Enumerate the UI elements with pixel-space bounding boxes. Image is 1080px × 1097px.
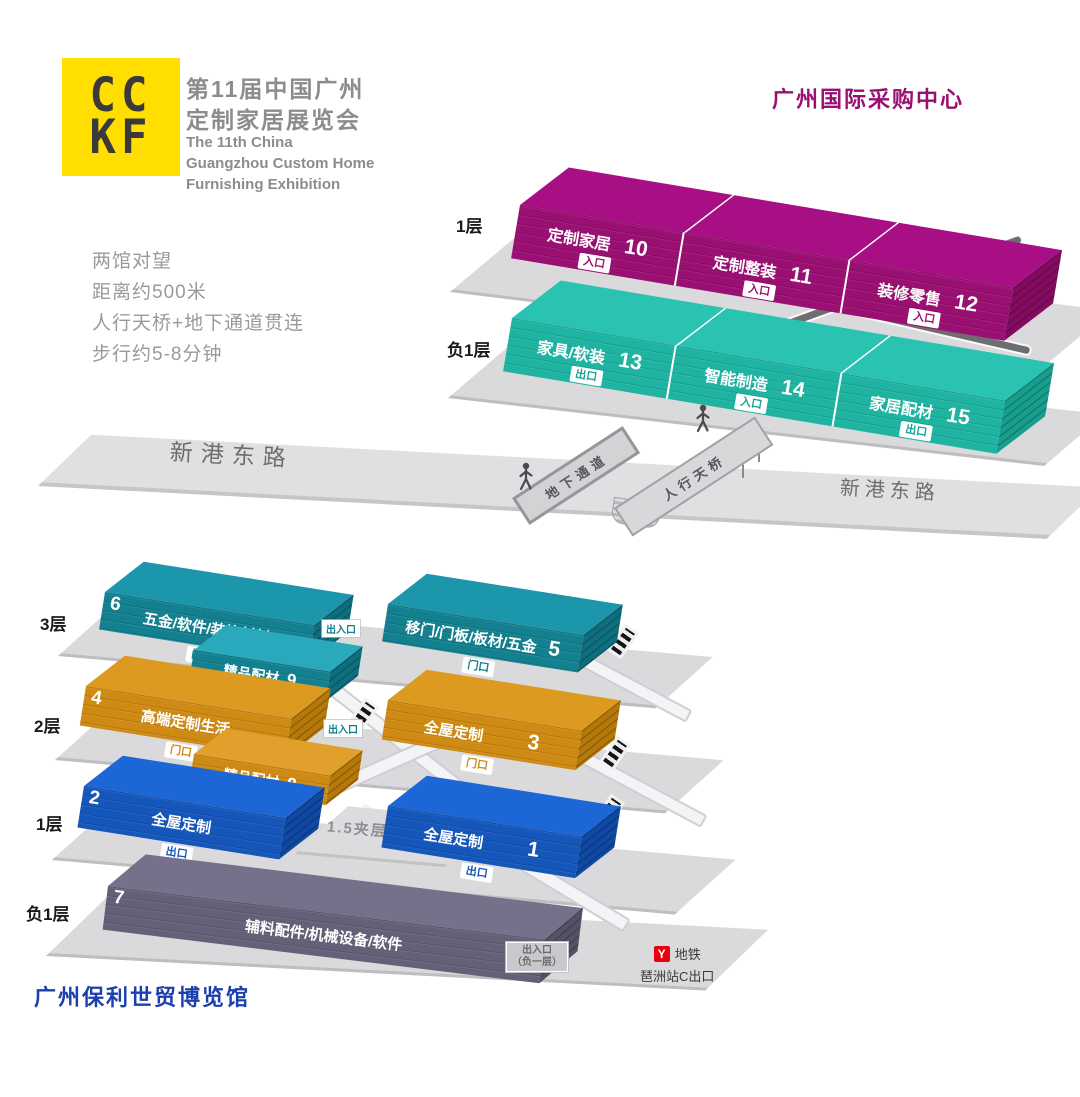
hall-divider-line: [848, 223, 899, 261]
poly-floor1-label: 1层: [36, 810, 62, 835]
exhibition-title-en-3: Furnishing Exhibition: [186, 176, 340, 193]
hall-10-name: 定制家居: [546, 221, 613, 255]
hall-2-number: 2: [87, 787, 101, 810]
hall-12-name: 装修零售: [876, 276, 943, 310]
b1-entrance-exit-badge: 出入口 （负一层）: [506, 942, 568, 972]
hall-7-number: 7: [112, 887, 125, 910]
floor2-exit-badge: 出入口: [324, 720, 362, 737]
hall-1-number: 1: [526, 838, 541, 864]
pedestrian-icon: [516, 462, 536, 492]
cchf-logo: CC KF: [62, 58, 180, 176]
poly-floor2-label: 2层: [34, 712, 60, 737]
b1-entrance-exit-line1: 出入口: [512, 945, 562, 957]
hall-3-number: 3: [526, 731, 541, 757]
hall-divider-line: [676, 308, 727, 346]
hall-divider-line: [684, 195, 735, 233]
purchasing-center-title: 广州国际采购中心: [772, 82, 964, 114]
hall-12-number: 12: [953, 290, 980, 318]
pc-floor1-label: 1层: [456, 212, 482, 237]
guangzhou-metro-icon: Y: [654, 946, 670, 962]
exhibition-title-en-2: Guangzhou Custom Home: [186, 155, 374, 172]
b1-entrance-exit-line2: （负一层）: [512, 957, 562, 969]
exhibition-title-en-1: The 11th China: [186, 134, 293, 151]
logo-line-bottom: KF: [90, 115, 153, 160]
hall-11-name: 定制整装: [711, 249, 778, 283]
hall-14-name: 智能制造: [703, 362, 770, 396]
road-label-right: 新港东路: [839, 471, 940, 505]
hall-15-number: 15: [945, 403, 972, 431]
hall-11-number: 11: [788, 263, 814, 290]
hall-3-name: 全屋定制: [422, 716, 485, 746]
hall-2-name: 全屋定制: [150, 808, 213, 838]
info-line-3: 人行天桥+地下通道贯连: [92, 308, 304, 335]
exhibition-title-cn-2: 定制家居展览会: [186, 101, 361, 135]
poly-expo-title: 广州保利世贸博览馆: [34, 980, 250, 1012]
road-label-left: 新港东路: [169, 433, 295, 473]
hall-15-name: 家居配材: [868, 389, 935, 423]
hall-5-number: 5: [547, 637, 562, 663]
exhibition-map: CC KF 第11届中国广州 定制家居展览会 The 11th China Gu…: [0, 0, 1080, 1097]
info-line-4: 步行约5-8分钟: [92, 339, 222, 366]
poly-floorB1-label: 负1层: [26, 900, 69, 925]
info-line-2: 距离约500米: [92, 277, 207, 304]
hall-4-number: 4: [89, 687, 103, 710]
metro-station-exit-label: 琶洲站C出口: [640, 966, 714, 985]
hall-divider-line: [840, 336, 891, 374]
hall-14-number: 14: [780, 376, 807, 404]
floor3-exit-badge: 出入口: [322, 620, 360, 637]
exhibition-title-cn-1: 第11届中国广州: [186, 70, 364, 104]
pc-floorB1-label: 负1层: [447, 336, 490, 361]
poly-floor3-label: 3层: [40, 610, 66, 635]
pedestrian-icon: [693, 404, 713, 434]
hall-13-number: 13: [617, 348, 644, 376]
hall-1-name: 全屋定制: [422, 823, 485, 853]
metro-exit-info: Y 地铁 琶洲站C出口: [640, 944, 714, 985]
hall-6-number: 6: [108, 593, 122, 616]
metro-label: 地铁: [675, 944, 701, 963]
hall-7-name: 辅料配件/机械设备/软件: [244, 915, 404, 955]
hall-13-name: 家具/软装: [536, 334, 607, 369]
info-line-1: 两馆对望: [92, 246, 172, 273]
hall-10-number: 10: [623, 235, 650, 263]
